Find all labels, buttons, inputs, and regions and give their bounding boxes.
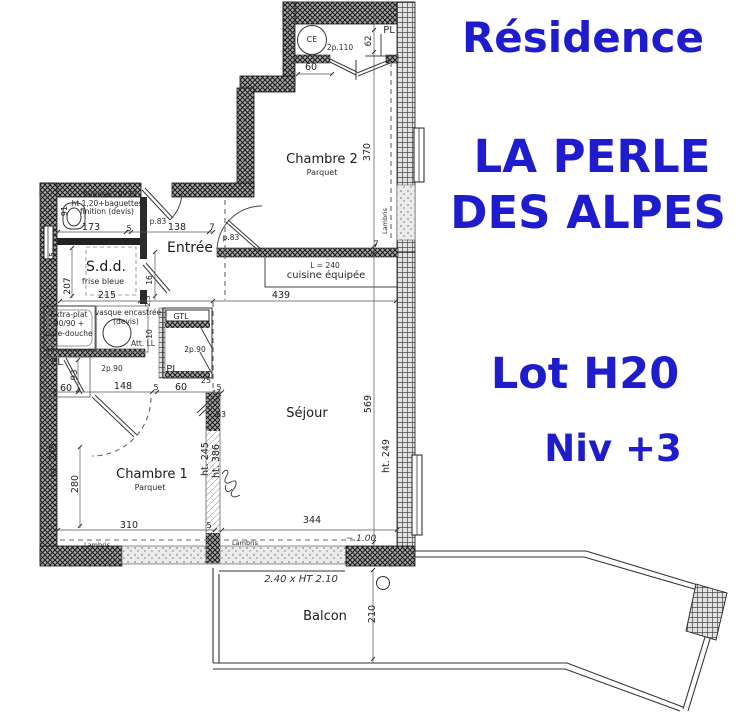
dim-5-a: 5 [126,224,131,233]
dim-173: 173 [82,222,100,233]
residence-word: Résidence [462,13,704,62]
note-vasque-2: (devis) [113,317,139,326]
dim-25: 25 [201,376,211,385]
note-gtl: GTL [173,312,189,321]
dim-16: 16 [145,275,154,285]
note-vasque-1: vasque encastrée [95,308,162,317]
door-2p90-left: 2p.90 [101,364,123,373]
dim-5-c: 5 [216,383,221,392]
chambre2-door [217,206,262,252]
dim-569: 569 [363,395,374,413]
dim-7-b: 7 [373,240,378,250]
dim-ht386: ht. 386 [211,444,222,478]
residence-name-line2: DES ALPES [450,186,726,239]
door-p83-sdd: p.83 [150,217,167,226]
chambre1-door [92,395,151,456]
dim-83: .83 [214,410,226,419]
door-2p110: 2p.110 [327,43,353,52]
door-p83-sejour: p.83 [223,233,240,242]
dim-91: 91 [60,206,69,216]
floor-plan-page: Chambre 2ParquetEntréeS.d.d.frise bleueC… [0,0,744,713]
fixture-ce: CE [307,35,318,44]
hand-note-2: 2.40 x HT 2.10 [264,574,338,585]
dim-138: 138 [168,222,186,233]
label-pl-chambre2: PL [383,25,395,36]
balcony-column [377,577,390,590]
dim-7-a: 7 [209,223,214,233]
hand-note-1: ~ 1.00 [346,534,377,544]
floor-plan-svg: Chambre 2ParquetEntréeS.d.d.frise bleueC… [0,0,744,713]
note-extraplat-1: Extra-plat [51,310,88,319]
balcony-end-wall [686,584,727,640]
room-chambre1: Chambre 1 [116,467,188,482]
room-sejour: Séjour [286,406,328,421]
dim-ht249: ht. 249 [381,439,392,473]
dim-10: 10 [145,329,154,339]
dim-215: 215 [98,290,116,301]
dim-280: 280 [70,475,81,493]
room-chambre2: Chambre 2 [286,152,358,167]
dim-55: 55 [48,252,57,262]
note-cuisine: cuisine équipée [287,269,366,281]
finish-lambris-sejour: Lambris [232,539,259,547]
dim-439: 439 [272,290,290,301]
dim-5-b: 5 [153,383,158,392]
dim-ht245-right: ht. 245 [200,442,211,476]
dim-60-c: 60 [175,382,187,393]
room-sdd: S.d.d. [86,259,126,275]
note-cuisine-l240: L = 240 [310,261,340,270]
floor-chambre1: Parquet [135,483,166,492]
note-frise-bleue: frise bleue [82,277,124,286]
label-pl-hall: PL [166,364,178,375]
title-block: Résidence LA PERLE DES ALPES Lot H20 Niv… [450,13,726,470]
dim-62: 62 [364,36,374,47]
lot-number: Lot H20 [491,349,679,399]
dim-207: 207 [63,277,73,294]
note-faience-1: faïence 20x20 [83,190,137,199]
dim-370: 370 [362,143,373,161]
door-2p90-right: 2p.90 [184,345,206,354]
dim-210-balcon: 210 [367,605,378,623]
floor-chambre2: Parquet [307,168,338,177]
room-entree: Entrée [167,240,213,256]
doors [44,34,397,456]
dim-ht245-left: ht. 245 [48,443,59,477]
dim-60-b: 60 [60,383,72,394]
dim-60-ch2: 60 [305,62,317,73]
dim-2-5: 2,5 [144,295,152,306]
hand-sketch-squiggle [222,470,240,497]
finish-lambris-ch2: Lambris [381,207,389,234]
note-att-ll: Att. LL [131,339,156,348]
dim-344: 344 [303,515,321,526]
dim-310: 310 [120,520,138,531]
chambre2-sliding-door [330,59,390,80]
note-extraplat-3: pare-douche [45,329,93,338]
finish-lambris-ch1: Lambris [84,541,111,549]
label-pl-left: PL [51,357,63,368]
level-indicator: Niv +3 [544,427,681,470]
dim-93: 93 [70,370,80,381]
note-extraplat-2: 90/90 + [54,319,84,328]
note-faience-3: finition (devis) [80,207,134,216]
dim-148: 148 [114,381,132,392]
room-balcon: Balcon [303,609,347,624]
residence-name-line1: LA PERLE [474,130,711,183]
dim-5-d: 5 [206,521,211,530]
